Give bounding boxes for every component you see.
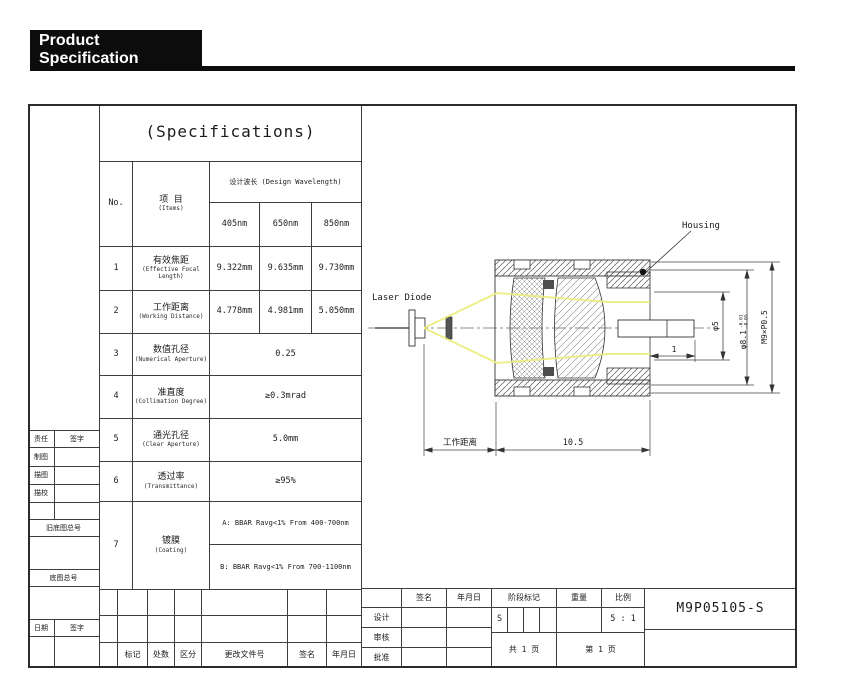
part-number: M9P05105-S bbox=[645, 588, 797, 630]
empty-cell bbox=[402, 648, 447, 668]
spec-row-no: 2 bbox=[100, 291, 133, 334]
empty-cell bbox=[175, 590, 202, 616]
revision-label-sign: 签名 bbox=[288, 643, 327, 668]
empty-cell bbox=[645, 630, 797, 668]
spec-wavelength-header: 设计波长 (Design Wavelength) bbox=[210, 162, 362, 203]
left-label-responsibility: 责任 bbox=[28, 431, 55, 448]
empty-cell bbox=[100, 643, 118, 668]
dim-total-label: 10.5 bbox=[563, 438, 583, 448]
row-label-en: (Working Distance) bbox=[138, 314, 203, 321]
housing-label: Housing bbox=[682, 221, 720, 231]
weight-value-cell bbox=[557, 608, 602, 633]
spec-row-no: 3 bbox=[100, 334, 133, 376]
spec-value-span: 5.0mm bbox=[210, 419, 362, 462]
empty-cell bbox=[327, 590, 362, 616]
header-banner: Product Specification bbox=[30, 30, 202, 70]
pages-total: 共 1 页 bbox=[492, 633, 557, 668]
titleblock-date-header: 年月日 bbox=[447, 588, 492, 608]
spec-coating-a: A: BBAR Ravg<1% From 400-700nm bbox=[210, 502, 362, 545]
empty-cell bbox=[402, 608, 447, 628]
output-tube bbox=[618, 320, 694, 337]
row-label-cn: 通光孔径 bbox=[153, 431, 189, 441]
empty-cell bbox=[148, 616, 175, 643]
dim-phi81-tol-lower: -0.05 bbox=[744, 314, 750, 328]
spec-row-label: 准直度 (Collimation Degree) bbox=[133, 376, 210, 419]
empty-cell bbox=[402, 628, 447, 648]
row-label-cn: 准直度 bbox=[157, 388, 184, 398]
empty-cell bbox=[447, 628, 492, 648]
spec-row-no: 1 bbox=[100, 247, 133, 291]
laser-diode-flange bbox=[409, 310, 415, 346]
row-label-en: (Collimation Degree) bbox=[135, 399, 207, 406]
empty-cell bbox=[55, 485, 100, 503]
empty-cell bbox=[55, 503, 100, 520]
dim-thread-label: M9×P0.5 bbox=[760, 310, 769, 344]
dim-phi5-label: φ5 bbox=[711, 321, 720, 331]
titleblock-stage-header: 阶段标记 bbox=[492, 588, 557, 608]
revision-label-change-doc-no: 更改文件号 bbox=[202, 643, 288, 668]
spec-value: 5.050mm bbox=[312, 291, 362, 334]
empty-cell bbox=[148, 590, 175, 616]
empty-cell bbox=[118, 616, 148, 643]
left-label-signature: 签字 bbox=[55, 431, 100, 448]
product-specification-sheet: Product Specification 责任 签字 制图 描图 描校 旧底图… bbox=[0, 0, 843, 689]
spec-value-span: ≥95% bbox=[210, 462, 362, 502]
housing-leader-line bbox=[645, 231, 691, 273]
spec-table-title: (Specifications) bbox=[100, 104, 362, 162]
spec-row-label: 透过率 (Transmittance) bbox=[133, 462, 210, 502]
lens-spacer bbox=[543, 280, 554, 289]
spec-value-span: 0.25 bbox=[210, 334, 362, 376]
spec-row-label: 数值孔径 (Numerical Aperture) bbox=[133, 334, 210, 376]
spec-value-span: ≥0.3mrad bbox=[210, 376, 362, 419]
dim-phi81-label: φ8.1 bbox=[739, 330, 748, 349]
empty-cell bbox=[202, 590, 288, 616]
titleblock-sign-header: 签名 bbox=[402, 588, 447, 608]
spec-wavelength-850: 850nm bbox=[312, 203, 362, 247]
row-label-en: (Numerical Aperture) bbox=[135, 357, 207, 364]
stage-value-cell: S bbox=[492, 608, 508, 633]
housing-leader-dot bbox=[640, 269, 646, 275]
titleblock-review: 审核 bbox=[362, 628, 402, 648]
items-header-cn: 项 目 bbox=[159, 195, 182, 205]
spec-value: 9.730mm bbox=[312, 247, 362, 291]
empty-cell bbox=[100, 590, 118, 616]
laser-diode-label: Laser Diode bbox=[372, 293, 432, 303]
left-label-signature2: 签字 bbox=[55, 620, 100, 637]
empty-cell bbox=[447, 648, 492, 668]
empty-cell bbox=[362, 588, 402, 608]
revision-label-count: 处数 bbox=[148, 643, 175, 668]
rear-retainer-bottom bbox=[607, 368, 650, 384]
row-label-en: (Clear Aperture) bbox=[142, 442, 200, 449]
spec-row-no: 5 bbox=[100, 419, 133, 462]
row-label-cn: 数值孔径 bbox=[153, 345, 189, 355]
row-label-cn: 镀膜 bbox=[162, 536, 180, 546]
empty-cell bbox=[28, 503, 55, 520]
spec-row-no: 6 bbox=[100, 462, 133, 502]
spec-value: 9.322mm bbox=[210, 247, 260, 291]
empty-cell bbox=[55, 637, 100, 668]
revision-label-zone: 区分 bbox=[175, 643, 202, 668]
spec-wavelength-650: 650nm bbox=[260, 203, 312, 247]
left-label-date: 日期 bbox=[28, 620, 55, 637]
empty-cell bbox=[327, 616, 362, 643]
spec-row-label: 通光孔径 (Clear Aperture) bbox=[133, 419, 210, 462]
lens-element-2 bbox=[555, 278, 606, 378]
spec-row-no: 4 bbox=[100, 376, 133, 419]
titleblock-scale-header: 比例 bbox=[602, 588, 645, 608]
left-label-base-no: 底图总号 bbox=[28, 570, 100, 587]
window-element bbox=[446, 317, 452, 339]
row-label-en: (Transmittance) bbox=[144, 484, 198, 491]
housing-top-notch bbox=[574, 260, 590, 269]
empty-cell bbox=[524, 608, 540, 633]
row-label-cn: 工作距离 bbox=[153, 303, 189, 313]
row-label-en: (Effective Focal Length) bbox=[133, 267, 209, 281]
empty-cell bbox=[540, 608, 557, 633]
empty-cell bbox=[175, 616, 202, 643]
empty-cell bbox=[28, 587, 100, 620]
spec-row-label: 工作距离 (Working Distance) bbox=[133, 291, 210, 334]
spec-wavelength-405: 405nm bbox=[210, 203, 260, 247]
titleblock-approve: 批准 bbox=[362, 648, 402, 668]
spec-row-label: 有效焦距 (Effective Focal Length) bbox=[133, 247, 210, 291]
empty-cell bbox=[28, 537, 100, 570]
empty-cell bbox=[118, 590, 148, 616]
left-label-old-base-no: 旧底图总号 bbox=[28, 520, 100, 537]
spec-col-items-header: 项 目 (Items) bbox=[133, 162, 210, 247]
empty-cell bbox=[288, 590, 327, 616]
empty-cell bbox=[100, 616, 118, 643]
revision-label-mark: 标记 bbox=[118, 643, 148, 668]
spec-value: 4.981mm bbox=[260, 291, 312, 334]
empty-cell bbox=[55, 448, 100, 467]
left-label-drafting: 制图 bbox=[28, 448, 55, 467]
empty-cell bbox=[447, 608, 492, 628]
spec-coating-b: B: BBAR Ravg<1% From 700-1100nm bbox=[210, 545, 362, 590]
left-strip-blank bbox=[28, 104, 100, 431]
left-label-tracing: 描图 bbox=[28, 467, 55, 485]
titleblock-weight-header: 重量 bbox=[557, 588, 602, 608]
row-label-cn: 有效焦距 bbox=[153, 256, 189, 266]
lens-assembly-drawing: Laser Diode Housing φ5 bbox=[362, 104, 797, 588]
dim-phi81-label-group: φ8.1 -0.01 -0.05 bbox=[739, 314, 750, 349]
dim-working-distance-label: 工作距离 bbox=[443, 437, 477, 448]
spec-col-no-header: No. bbox=[100, 162, 133, 247]
empty-cell bbox=[202, 616, 288, 643]
housing-bottom-notch bbox=[574, 387, 590, 396]
housing-top-notch bbox=[514, 260, 530, 269]
spec-row-no: 7 bbox=[100, 502, 133, 590]
scale-value: 5 : 1 bbox=[602, 608, 645, 633]
lens-element-1 bbox=[510, 278, 545, 378]
row-label-cn: 透过率 bbox=[157, 472, 184, 482]
lens-spacer bbox=[543, 367, 554, 376]
titleblock-design: 设计 bbox=[362, 608, 402, 628]
page-title: Product Specification bbox=[39, 32, 202, 68]
empty-cell bbox=[288, 616, 327, 643]
spec-value: 4.778mm bbox=[210, 291, 260, 334]
row-label-en: (Coating) bbox=[155, 548, 188, 555]
laser-diode-body bbox=[415, 318, 425, 338]
spec-value: 9.635mm bbox=[260, 247, 312, 291]
page-number: 第 1 页 bbox=[557, 633, 645, 668]
revision-label-date: 年月日 bbox=[327, 643, 362, 668]
housing-bottom-notch bbox=[514, 387, 530, 396]
empty-cell bbox=[55, 467, 100, 485]
dim-step-label: 1 bbox=[672, 345, 677, 354]
left-label-trace-check: 描校 bbox=[28, 485, 55, 503]
spec-row-label: 镀膜 (Coating) bbox=[133, 502, 210, 590]
empty-cell bbox=[28, 637, 55, 668]
empty-cell bbox=[508, 608, 524, 633]
header-rule bbox=[30, 66, 795, 71]
items-header-en: (Items) bbox=[158, 206, 183, 213]
